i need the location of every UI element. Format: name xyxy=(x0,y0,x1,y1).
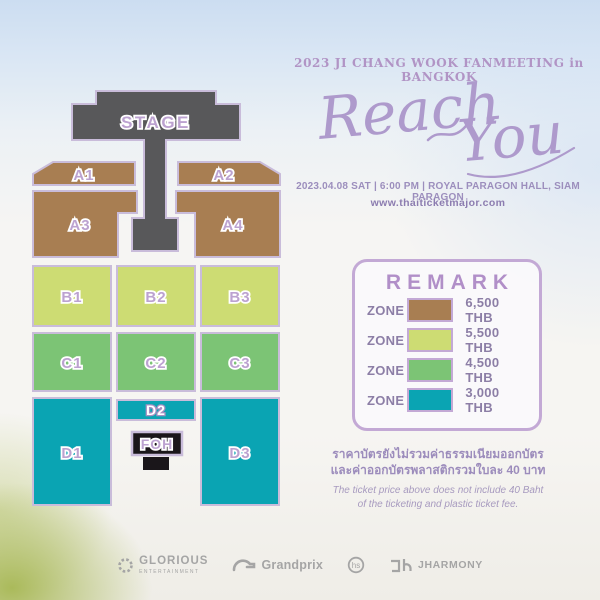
zone-c3-label: C3 xyxy=(229,355,250,372)
sponsor-grandprix: Grandprix xyxy=(232,558,323,572)
poster: STAGE A1 A2 A3 A4 B1 B2 B3 C1 C2 C3 D1 D… xyxy=(0,0,600,600)
sponsor-glorious: GLORIOUS ENTERTAINMENT xyxy=(117,556,208,575)
ticket-website: www.thaiticketmajor.com xyxy=(288,197,588,209)
glorious-subtitle: ENTERTAINMENT xyxy=(139,570,208,575)
zone-b3-label: B3 xyxy=(229,289,250,306)
zone-a4-label: A4 xyxy=(222,217,243,234)
zone-b-swatch xyxy=(407,328,453,352)
sponsor-jharmony: JHARMONY xyxy=(389,558,483,573)
fee-note-en-2: of the ticketing and plastic ticket fee. xyxy=(328,498,548,512)
zone-b2-label: B2 xyxy=(145,289,166,306)
remark-zone-label: ZONE xyxy=(367,333,405,348)
remark-title: REMARK xyxy=(355,271,539,295)
zone-d2-label: D2 xyxy=(146,402,166,418)
remark-row-b: ZONE 5,500 THB xyxy=(355,325,539,355)
grandprix-name: Grandprix xyxy=(261,558,323,572)
zone-c-swatch xyxy=(407,358,453,382)
stage-label: STAGE xyxy=(121,113,191,132)
zone-d3-label: D3 xyxy=(229,445,250,462)
zone-a-swatch xyxy=(407,298,453,322)
grandprix-arc-icon xyxy=(232,559,256,572)
jharmony-mark-icon xyxy=(389,558,413,573)
zone-c2-label: C2 xyxy=(145,355,166,372)
zone-a1-label: A1 xyxy=(73,167,94,184)
zone-b1-label: B1 xyxy=(61,289,82,306)
zone-c-price: 4,500 THB xyxy=(465,355,528,385)
zone-a-price: 6,500 THB xyxy=(465,295,528,325)
zone-c1-label: C1 xyxy=(61,355,82,372)
remark-row-d: ZONE 3,000 THB xyxy=(355,385,539,415)
remark-zone-label: ZONE xyxy=(367,363,405,378)
sponsor-logos: GLORIOUS ENTERTAINMENT Grandprix hs JHAR… xyxy=(0,556,600,575)
zone-d-swatch xyxy=(407,388,453,412)
remark-legend: REMARK ZONE 6,500 THB ZONE 5,500 THB ZON… xyxy=(352,259,542,431)
jharmony-name: JHARMONY xyxy=(418,559,483,571)
fee-note-thai-2: และค่าออกบัตรพลาสติกรวมใบละ 40 บาท xyxy=(328,462,548,478)
hs-monogram: hs xyxy=(352,561,360,570)
glorious-starburst-icon xyxy=(117,557,134,574)
remark-row-a: ZONE 6,500 THB xyxy=(355,295,539,325)
remark-row-c: ZONE 4,500 THB xyxy=(355,355,539,385)
zone-b-price: 5,500 THB xyxy=(465,325,528,355)
zone-a3-label: A3 xyxy=(69,217,90,234)
zone-d-price: 3,000 THB xyxy=(465,385,528,415)
zone-a2-label: A2 xyxy=(213,167,234,184)
remark-zone-label: ZONE xyxy=(367,303,405,318)
fee-note-thai-1: ราคาบัตรยังไม่รวมค่าธรรมเนียมออกบัตร xyxy=(328,446,548,462)
zone-d1-label: D1 xyxy=(61,445,82,462)
remark-zone-label: ZONE xyxy=(367,393,405,408)
sponsor-hs: hs xyxy=(347,556,365,574)
hs-circle-icon: hs xyxy=(347,556,365,574)
foh-foot xyxy=(143,457,169,470)
fee-note-en-1: The ticket price above does not include … xyxy=(328,484,548,498)
glorious-name: GLORIOUS xyxy=(139,556,208,568)
fee-notes: ราคาบัตรยังไม่รวมค่าธรรมเนียมออกบัตร และ… xyxy=(328,446,548,512)
foh-label: FOH xyxy=(141,436,174,452)
script-flourish xyxy=(300,70,580,190)
